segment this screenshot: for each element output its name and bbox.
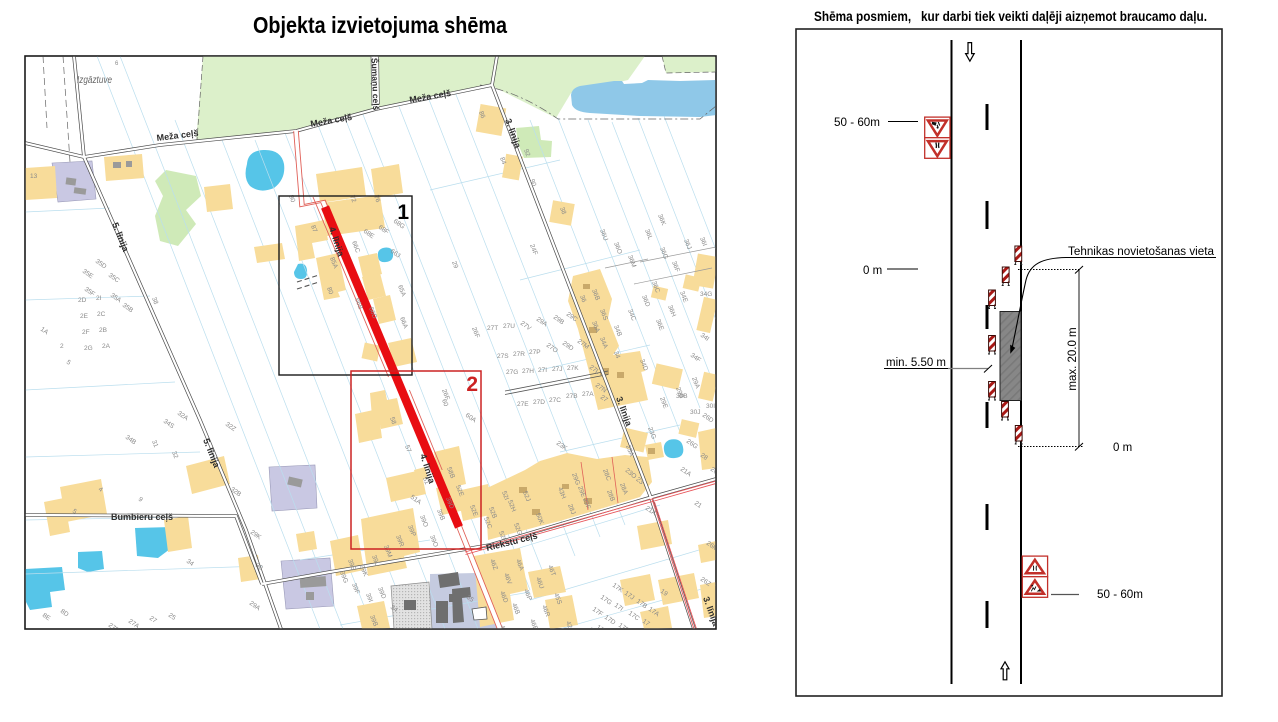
svg-text:Shēma posmiem, kur darbi tie: Shēma posmiem, kur darbi tiek veikti daļ… [814, 9, 1207, 24]
svg-text:0 m: 0 m [863, 265, 882, 277]
svg-text:13: 13 [30, 173, 38, 180]
svg-text:Izgāztuve: Izgāztuve [77, 75, 112, 86]
svg-text:27G: 27G [506, 369, 518, 376]
svg-text:27B: 27B [566, 393, 578, 400]
svg-text:2E: 2E [80, 313, 89, 320]
svg-text:27A: 27A [582, 391, 594, 398]
svg-text:0 m: 0 m [1113, 442, 1132, 454]
svg-text:30B: 30B [676, 393, 688, 400]
svg-text:1: 1 [397, 201, 409, 224]
svg-text:27C: 27C [549, 397, 561, 404]
svg-text:50 - 60m: 50 - 60m [1097, 589, 1143, 601]
svg-text:27U: 27U [503, 323, 515, 330]
svg-text:Bumbieru ceļš: Bumbieru ceļš [111, 512, 173, 522]
svg-text:27H: 27H [522, 368, 534, 375]
svg-text:Šumaņu ceļš: Šumaņu ceļš [370, 58, 383, 111]
svg-text:2: 2 [466, 373, 478, 396]
svg-text:2B: 2B [99, 327, 107, 334]
svg-text:27D: 27D [533, 399, 545, 406]
svg-text:27S: 27S [497, 353, 509, 360]
svg-text:2G: 2G [84, 345, 93, 352]
svg-text:50 - 60m: 50 - 60m [834, 117, 880, 129]
svg-text:26K: 26K [299, 640, 313, 653]
svg-text:2I: 2I [96, 295, 102, 302]
svg-text:27R: 27R [513, 351, 525, 358]
svg-text:27I: 27I [538, 367, 547, 374]
svg-text:max. 20.0 m: max. 20.0 m [1067, 327, 1079, 390]
svg-text:2D: 2D [78, 297, 87, 304]
svg-text:Objekta izvietojuma shēma: Objekta izvietojuma shēma [253, 12, 507, 38]
svg-text:27K: 27K [567, 365, 579, 372]
svg-text:30J: 30J [690, 409, 700, 416]
svg-text:34G: 34G [700, 291, 712, 298]
svg-text:27P: 27P [529, 349, 541, 356]
svg-text:2: 2 [60, 343, 64, 350]
svg-text:27E: 27E [517, 401, 529, 408]
svg-text:Tehnikas novietošanas vieta: Tehnikas novietošanas vieta [1068, 246, 1215, 258]
svg-text:27J: 27J [552, 366, 562, 373]
svg-text:30I: 30I [706, 403, 715, 410]
svg-text:2A: 2A [102, 343, 111, 350]
svg-text:27T: 27T [487, 325, 498, 332]
svg-text:2C: 2C [97, 311, 106, 318]
svg-text:min. 5.50 m: min. 5.50 m [886, 357, 946, 369]
svg-text:2F: 2F [82, 329, 90, 336]
